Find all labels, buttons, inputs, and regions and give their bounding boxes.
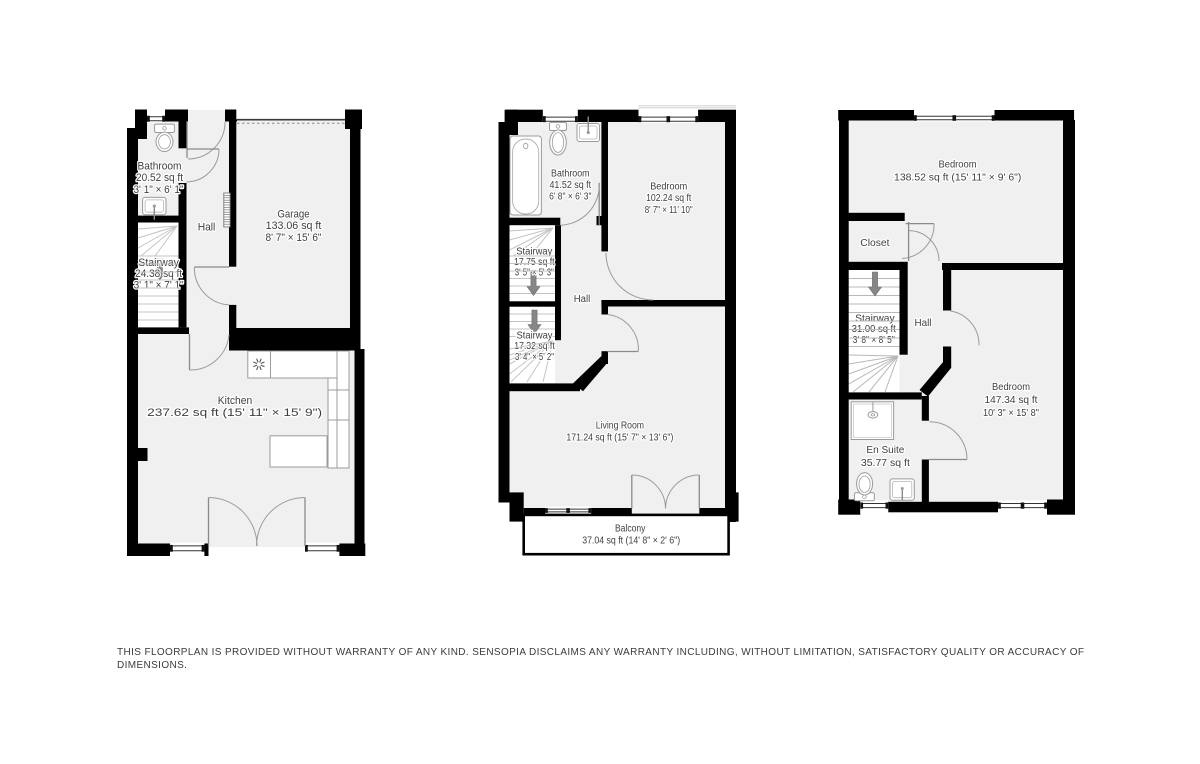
svg-text:102.24 sq ft: 102.24 sq ft xyxy=(646,193,691,204)
svg-text:Stairway: Stairway xyxy=(855,313,895,324)
svg-text:Bathroom: Bathroom xyxy=(138,161,182,173)
svg-text:237.62 sq ft (15' 11" × 15' 9": 237.62 sq ft (15' 11" × 15' 9") xyxy=(147,407,322,419)
svg-text:3' 1" × 6' 1": 3' 1" × 6' 1" xyxy=(134,184,184,196)
svg-text:41.52 sq ft: 41.52 sq ft xyxy=(549,180,591,191)
svg-text:Bedroom: Bedroom xyxy=(992,382,1030,393)
svg-text:Hall: Hall xyxy=(198,221,216,233)
svg-text:171.24 sq ft (15' 7" × 13' 6"): 171.24 sq ft (15' 7" × 13' 6") xyxy=(566,432,673,443)
svg-text:Living Room: Living Room xyxy=(596,421,644,432)
svg-text:8' 7" × 11' 10": 8' 7" × 11' 10" xyxy=(645,205,693,216)
svg-text:3' 1" × 7' 1": 3' 1" × 7' 1" xyxy=(134,279,184,291)
svg-text:Balcony: Balcony xyxy=(615,524,646,535)
svg-text:138.52 sq ft (15' 11" × 9' 6"): 138.52 sq ft (15' 11" × 9' 6") xyxy=(894,173,1021,184)
svg-text:Garage: Garage xyxy=(277,208,309,220)
svg-text:6' 8" × 6' 3": 6' 8" × 6' 3" xyxy=(549,192,592,203)
svg-text:20.52 sq ft: 20.52 sq ft xyxy=(136,172,183,184)
svg-text:10' 3" × 15' 8": 10' 3" × 15' 8" xyxy=(983,408,1039,419)
svg-text:24.38 sq ft: 24.38 sq ft xyxy=(135,268,182,280)
svg-text:Hall: Hall xyxy=(574,294,591,305)
svg-text:Bathroom: Bathroom xyxy=(551,168,590,179)
svg-text:Kitchen: Kitchen xyxy=(218,395,252,407)
svg-text:3' 8" × 8' 5": 3' 8" × 8' 5" xyxy=(853,335,895,346)
svg-text:En Suite: En Suite xyxy=(866,445,904,456)
svg-text:133.06 sq ft: 133.06 sq ft xyxy=(266,220,322,232)
svg-text:147.34 sq ft: 147.34 sq ft xyxy=(985,395,1038,406)
svg-text:35.77 sq ft: 35.77 sq ft xyxy=(861,458,910,469)
svg-text:Hall: Hall xyxy=(915,318,932,329)
svg-text:8' 7" × 15' 6": 8' 7" × 15' 6" xyxy=(266,232,322,244)
svg-text:Stairway: Stairway xyxy=(517,330,553,341)
svg-text:37.04 sq ft (14' 8" × 2' 6"): 37.04 sq ft (14' 8" × 2' 6") xyxy=(582,536,680,547)
svg-text:Bedroom: Bedroom xyxy=(650,181,687,192)
svg-text:Bedroom: Bedroom xyxy=(939,159,977,170)
svg-text:3' 4" × 5' 2": 3' 4" × 5' 2" xyxy=(515,352,554,363)
svg-text:Closet: Closet xyxy=(860,238,889,249)
svg-text:3' 5" × 5' 3": 3' 5" × 5' 3" xyxy=(515,267,554,278)
